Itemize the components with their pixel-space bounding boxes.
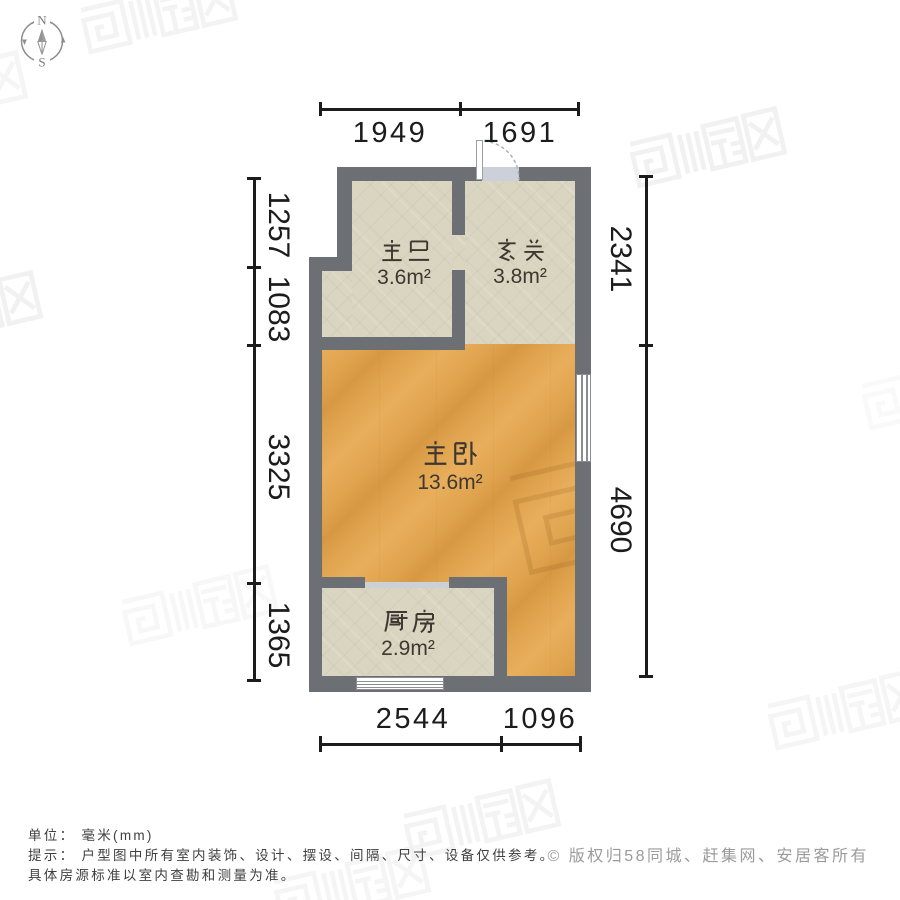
svg-text:S: S xyxy=(38,55,45,70)
svg-text:N: N xyxy=(37,13,47,28)
